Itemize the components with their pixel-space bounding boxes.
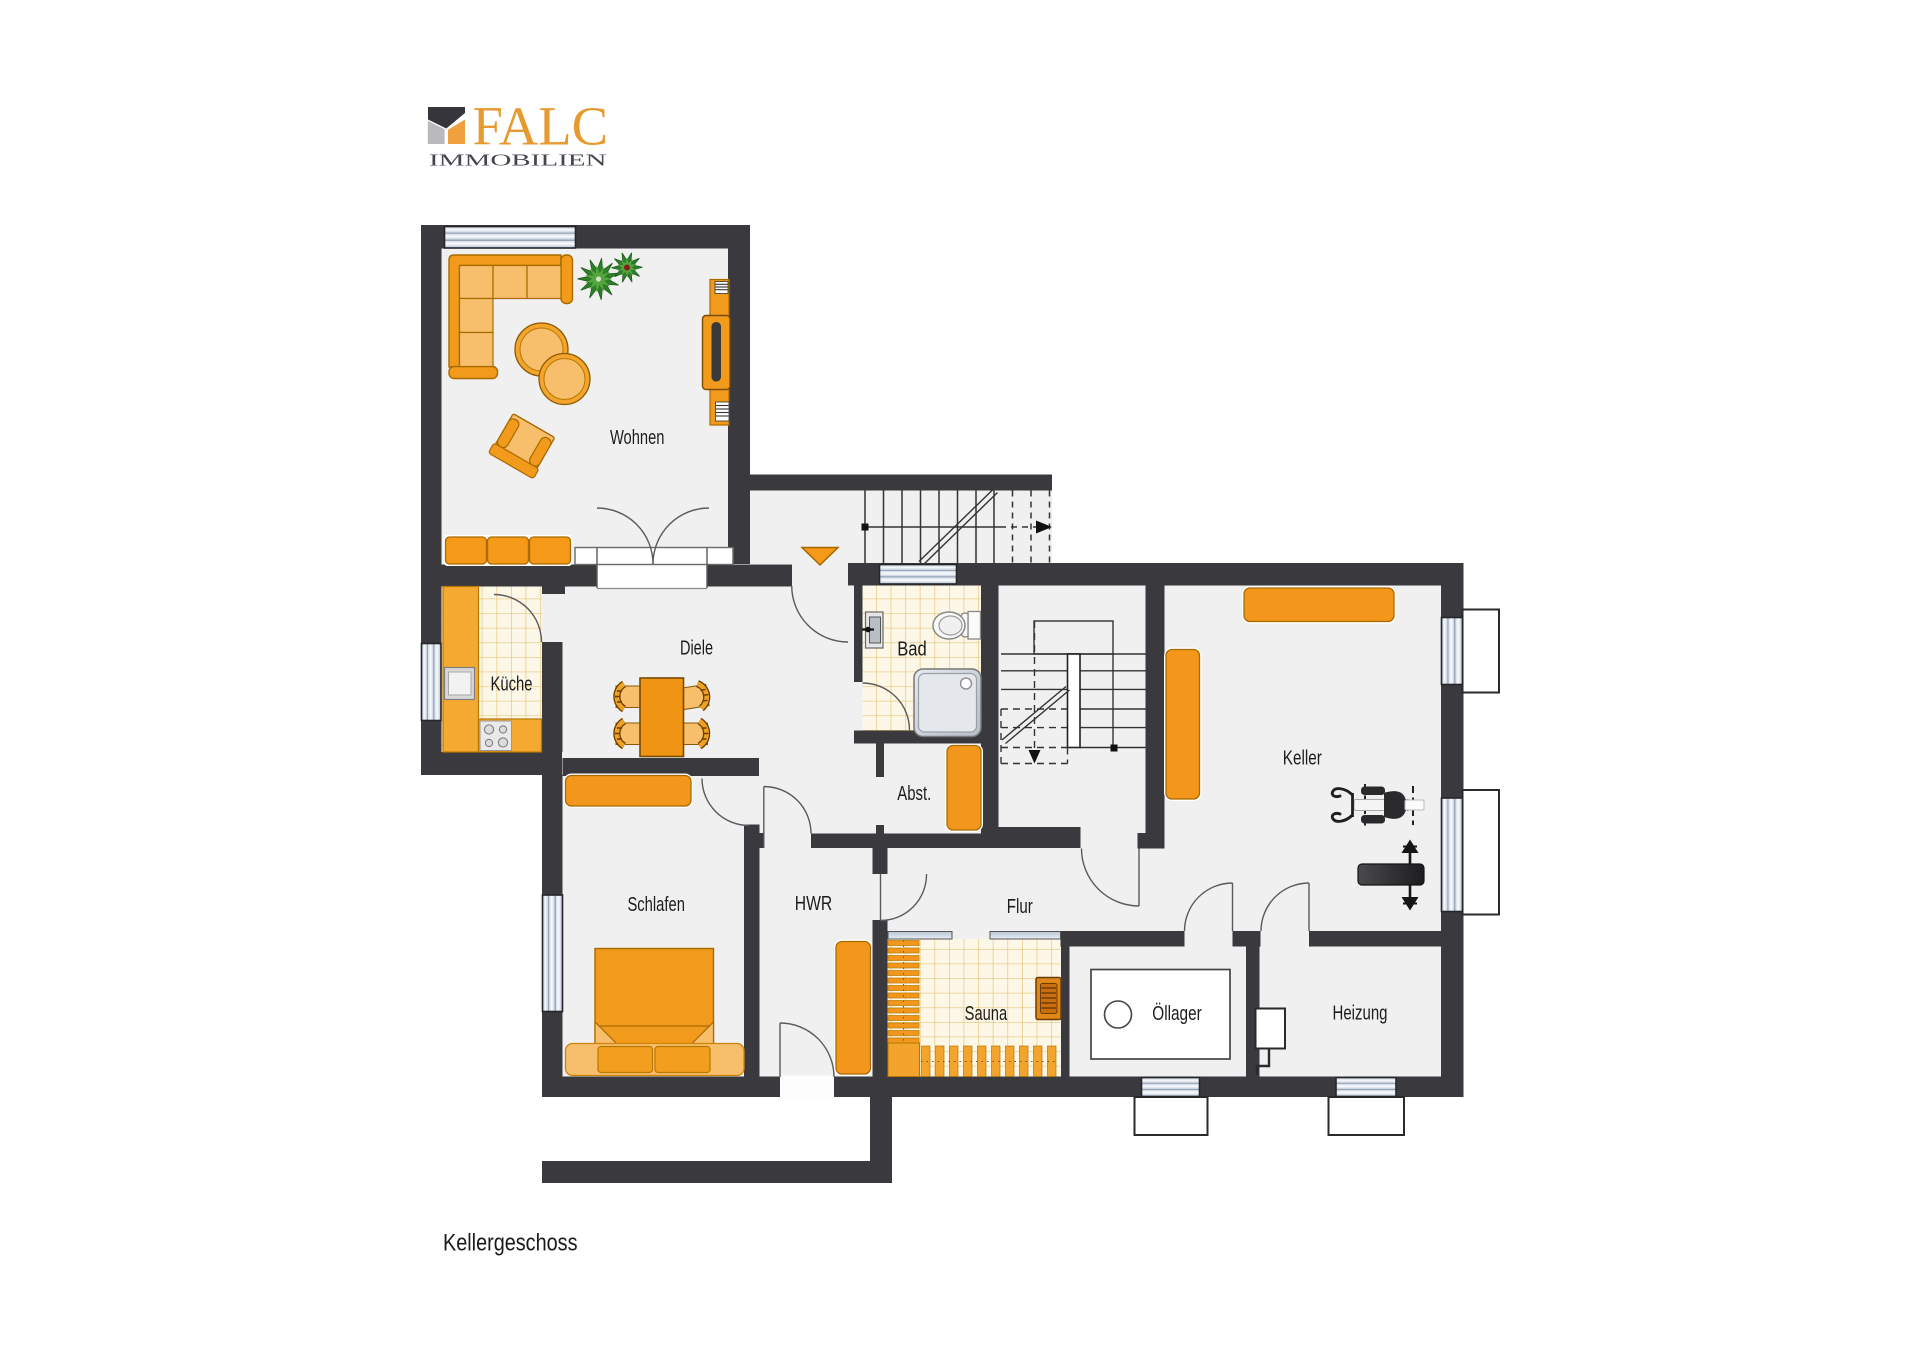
svg-text:Wohnen: Wohnen — [610, 427, 665, 449]
svg-text:IMMOBILIEN: IMMOBILIEN — [429, 151, 607, 170]
svg-text:Öllager: Öllager — [1152, 1003, 1202, 1025]
svg-text:Sauna: Sauna — [965, 1003, 1008, 1025]
svg-text:Küche: Küche — [491, 674, 533, 696]
svg-text:Abst.: Abst. — [897, 783, 931, 805]
svg-text:Flur: Flur — [1007, 896, 1033, 918]
svg-text:Diele: Diele — [680, 638, 713, 660]
svg-text:Bad: Bad — [897, 639, 927, 661]
svg-text:Heizung: Heizung — [1333, 1003, 1388, 1025]
svg-text:Keller: Keller — [1283, 748, 1322, 770]
svg-text:Schlafen: Schlafen — [627, 894, 685, 916]
svg-text:HWR: HWR — [795, 893, 833, 915]
svg-text:Kellergeschoss: Kellergeschoss — [443, 1230, 578, 1257]
svg-text:FALC: FALC — [473, 97, 609, 158]
